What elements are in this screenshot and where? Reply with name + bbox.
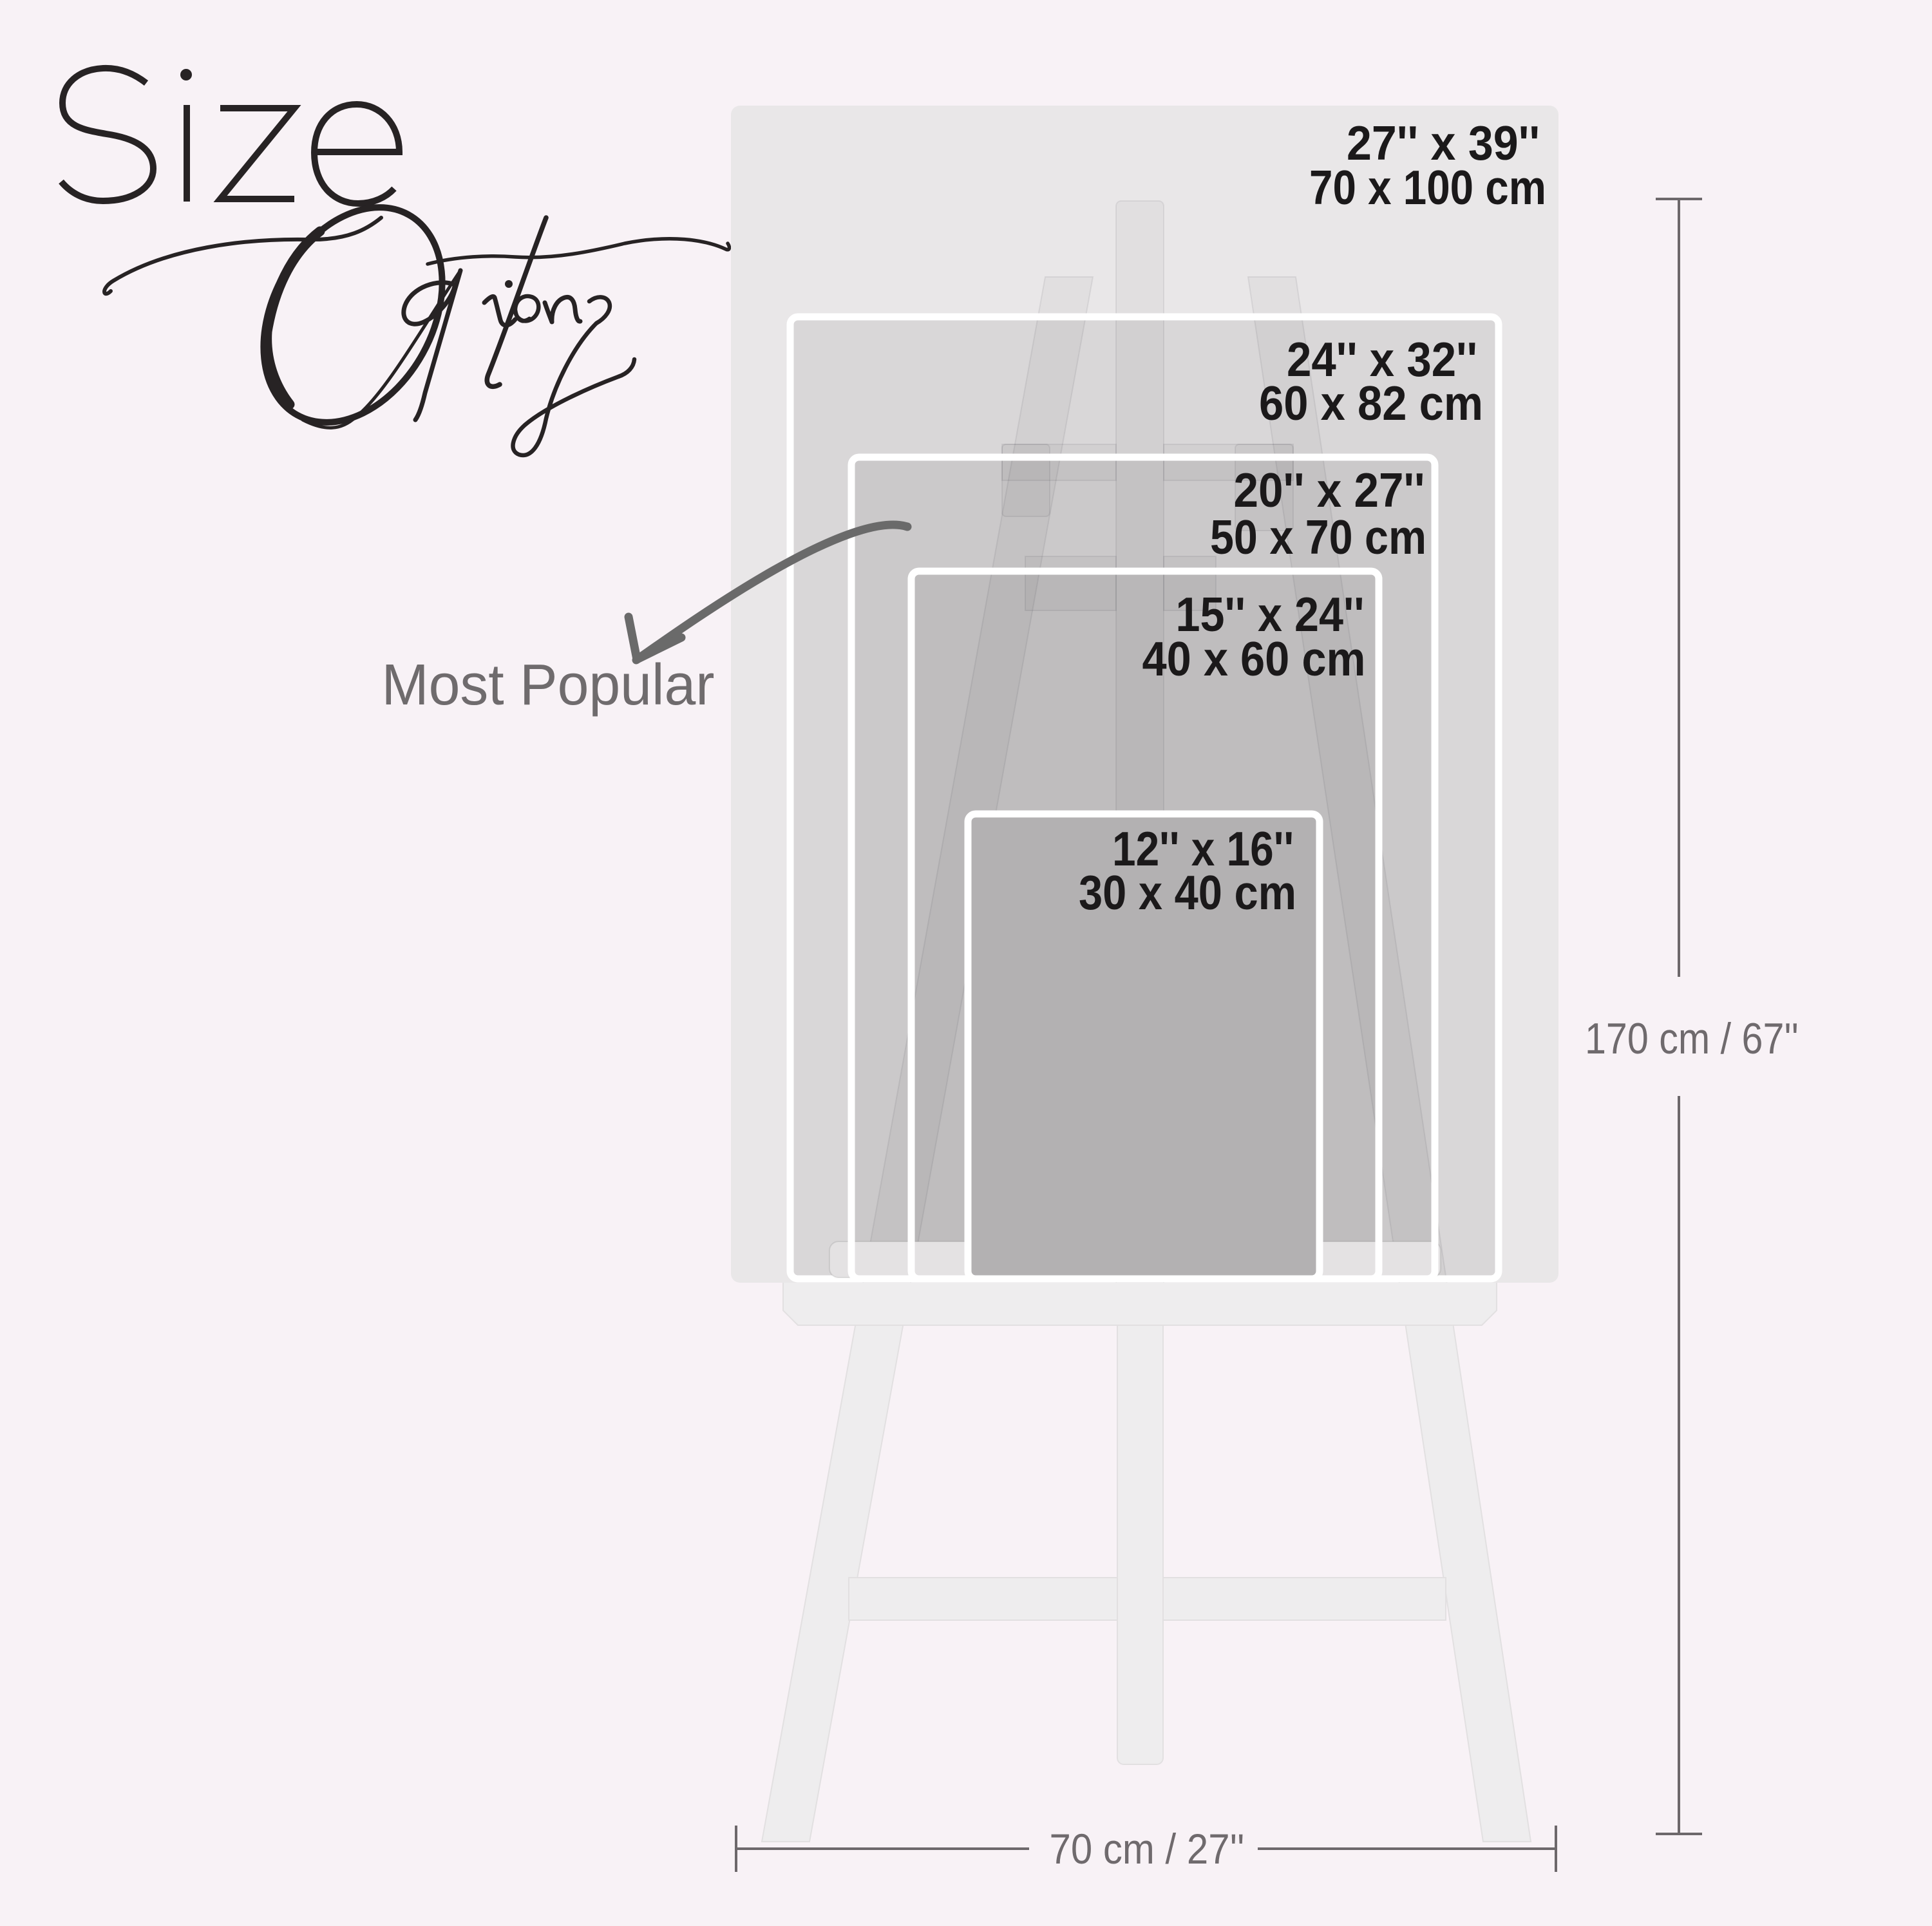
svg-text:50 x 70 cm: 50 x 70 cm: [1210, 510, 1426, 564]
svg-text:40 x 60 cm: 40 x 60 cm: [1142, 632, 1366, 686]
svg-text:30 x 40 cm: 30 x 40 cm: [1079, 865, 1296, 920]
svg-text:70 cm / 27'': 70 cm / 27'': [1050, 1825, 1245, 1873]
svg-text:170 cm / 67'': 170 cm / 67'': [1585, 1014, 1799, 1063]
svg-text:Most Popular: Most Popular: [382, 653, 715, 717]
svg-text:70 x 100 cm: 70 x 100 cm: [1309, 160, 1546, 214]
svg-text:60 x 82 cm: 60 x 82 cm: [1259, 376, 1483, 430]
svg-text:20'' x 27'': 20'' x 27'': [1234, 463, 1425, 517]
